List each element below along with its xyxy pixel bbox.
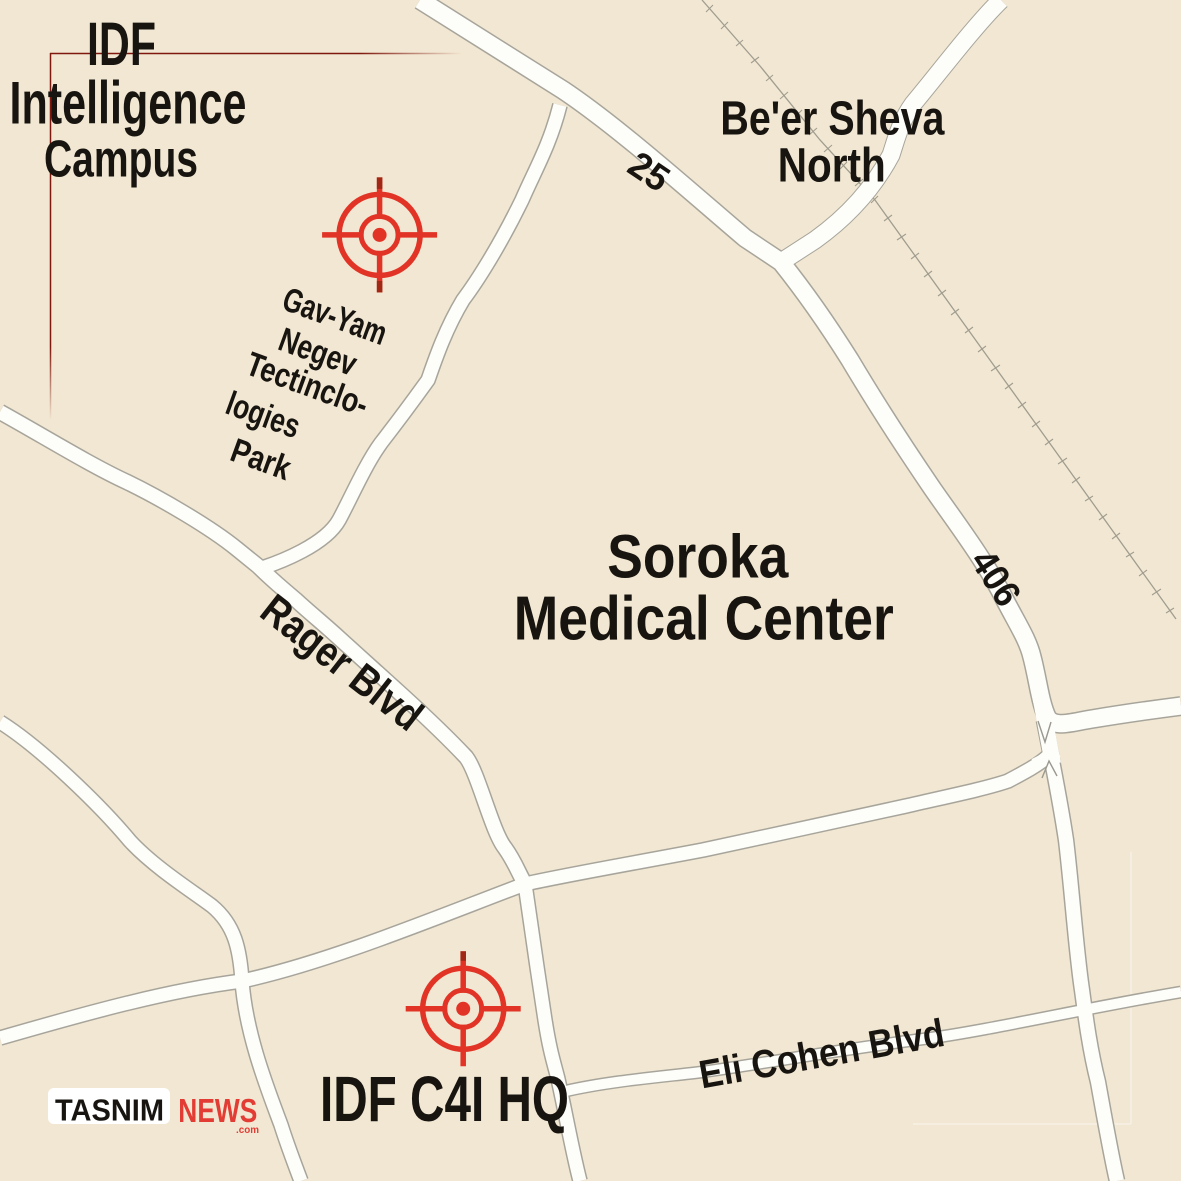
svg-text:Medical Center: Medical Center: [514, 584, 894, 653]
svg-text:Soroka: Soroka: [607, 523, 789, 591]
svg-text:Intelligence: Intelligence: [10, 68, 247, 136]
svg-text:Campus: Campus: [44, 130, 198, 188]
svg-text:IDF C4I HQ: IDF C4I HQ: [320, 1063, 569, 1135]
svg-text:TASNIM: TASNIM: [55, 1094, 164, 1128]
svg-text:.com: .com: [236, 1124, 259, 1136]
svg-text:North: North: [778, 140, 886, 193]
svg-text:Be'er Sheva: Be'er Sheva: [720, 93, 944, 146]
